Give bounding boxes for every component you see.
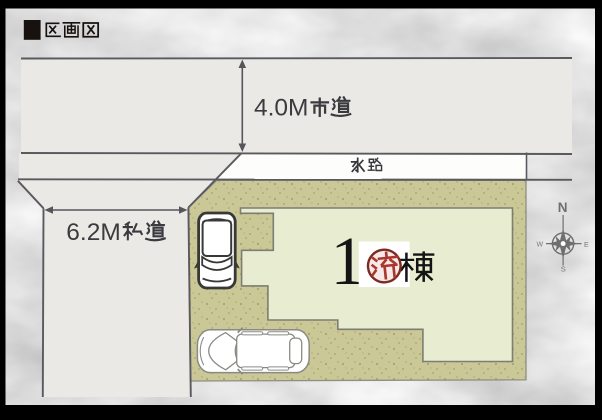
svg-text:E: E [584, 242, 589, 249]
svg-text:6.2M: 6.2M [66, 219, 120, 246]
svg-text:N: N [558, 200, 568, 215]
svg-text:4.0M: 4.0M [254, 95, 308, 122]
svg-text:S: S [561, 265, 566, 274]
svg-text:W: W [537, 242, 544, 249]
